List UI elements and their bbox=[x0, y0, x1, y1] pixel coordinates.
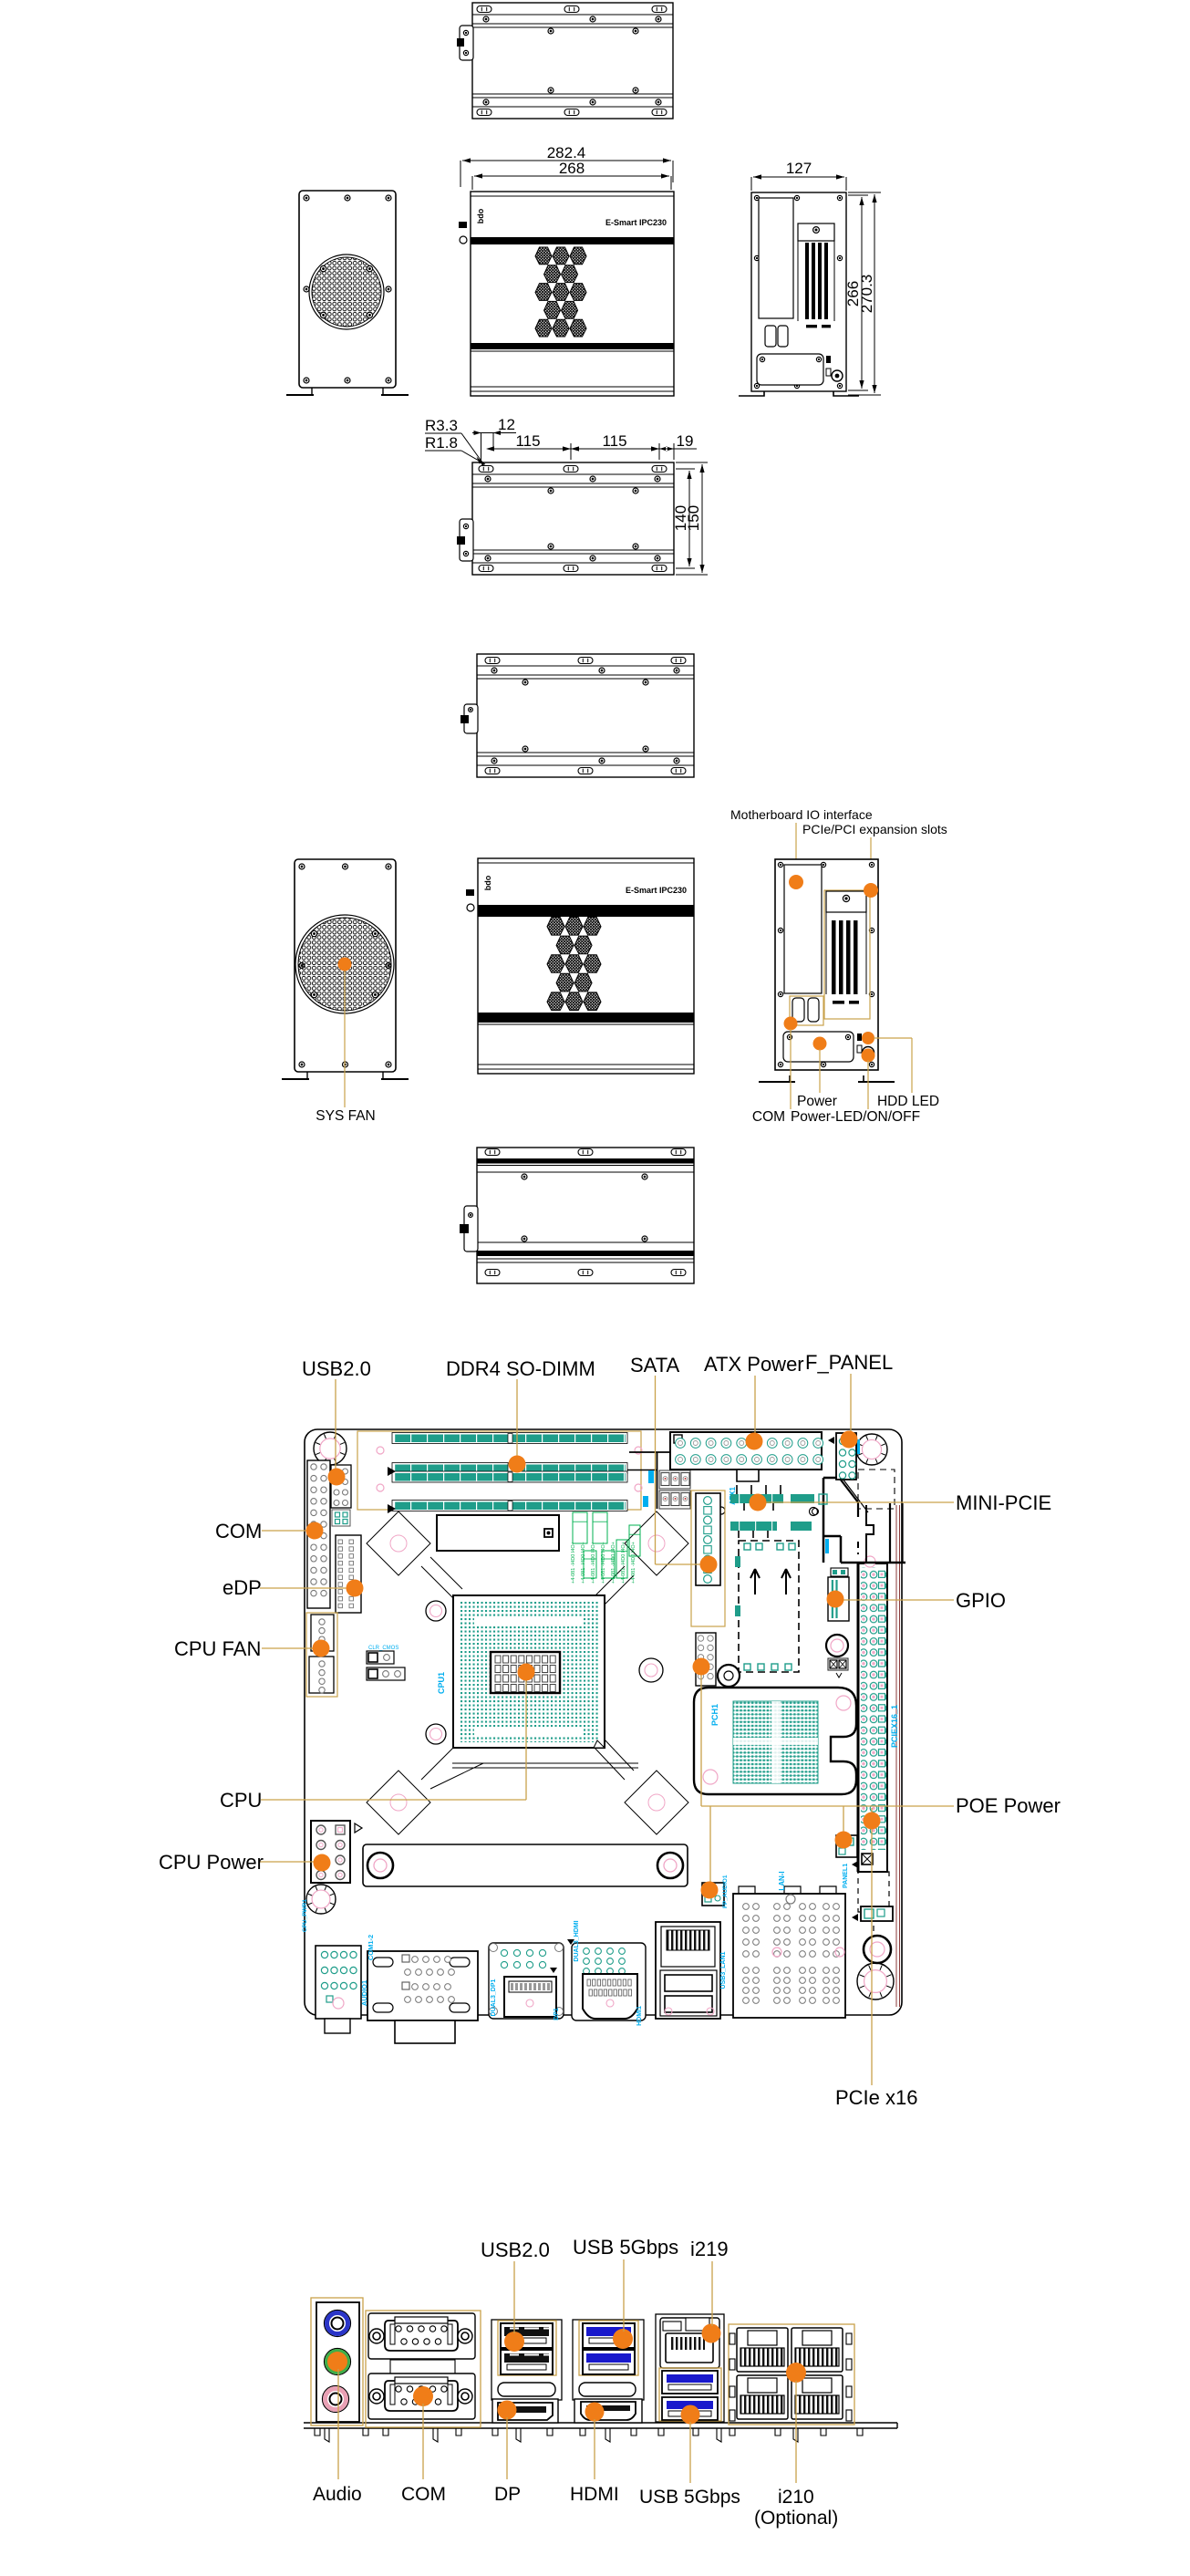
svg-text:PCIe/PCI expansion slots: PCIe/PCI expansion slots bbox=[802, 822, 947, 836]
svg-text:268: 268 bbox=[559, 160, 585, 177]
svg-text:+4-081 -I4D0 I4O+: +4-081 -I4D0 I4O+ bbox=[571, 1542, 576, 1584]
svg-text:Motherboard IO interface: Motherboard IO interface bbox=[730, 807, 873, 822]
svg-text:+4-081 -I4D0 I4O+: +4-081 -I4D0 I4O+ bbox=[581, 1542, 586, 1584]
svg-text:CLR_CMOS: CLR_CMOS bbox=[368, 1646, 398, 1651]
svg-text:+4-081 -I4D0 I4O+: +4-081 -I4D0 I4O+ bbox=[601, 1542, 606, 1584]
svg-text:POE Power: POE Power bbox=[956, 1794, 1061, 1817]
svg-text:270.3: 270.3 bbox=[858, 275, 875, 314]
svg-text:eDP: eDP bbox=[222, 1576, 262, 1599]
svg-text:USB 5Gbps: USB 5Gbps bbox=[573, 2236, 678, 2259]
svg-text:FP_AUDIO1: FP_AUDIO1 bbox=[722, 1875, 729, 1908]
svg-text:PCIe x16: PCIe x16 bbox=[835, 2086, 918, 2109]
svg-text:SATA: SATA bbox=[630, 1354, 680, 1376]
svg-text:Power: Power bbox=[797, 1094, 837, 1109]
svg-text:DDR4 SO-DIMM: DDR4 SO-DIMM bbox=[446, 1357, 595, 1380]
svg-text:F_PANEL: F_PANEL bbox=[805, 1351, 893, 1374]
svg-text:bdo: bdo bbox=[476, 208, 485, 223]
svg-text:HDD LED: HDD LED bbox=[877, 1094, 939, 1109]
svg-text:E-Smart IPC230: E-Smart IPC230 bbox=[605, 218, 667, 227]
svg-text:CPU_PWR1: CPU_PWR1 bbox=[302, 1899, 308, 1933]
svg-text:R1.8: R1.8 bbox=[425, 434, 458, 452]
svg-text:E-Smart IPC230: E-Smart IPC230 bbox=[626, 886, 687, 895]
svg-text:PCH1: PCH1 bbox=[710, 1704, 719, 1726]
svg-text:DP1: DP1 bbox=[554, 2008, 560, 2020]
svg-text:R3.3: R3.3 bbox=[425, 417, 458, 434]
svg-text:GPIO: GPIO bbox=[956, 1589, 1006, 1612]
svg-text:HDMI: HDMI bbox=[570, 2484, 619, 2505]
svg-text:COM: COM bbox=[752, 1109, 785, 1125]
svg-text:DP: DP bbox=[494, 2484, 521, 2505]
svg-text:USB2.0: USB2.0 bbox=[481, 2238, 550, 2261]
svg-text:115: 115 bbox=[602, 432, 626, 450]
svg-text:HDMI1: HDMI1 bbox=[636, 2006, 643, 2026]
svg-text:COM: COM bbox=[401, 2484, 446, 2505]
svg-text:COM: COM bbox=[215, 1520, 262, 1542]
svg-text:PCIEX16_1: PCIEX16_1 bbox=[890, 1705, 899, 1748]
svg-text:LAN-I: LAN-I bbox=[778, 1871, 786, 1890]
svg-text:Audio: Audio bbox=[313, 2484, 362, 2505]
svg-text:USB2.0: USB2.0 bbox=[302, 1357, 371, 1380]
svg-text:i219: i219 bbox=[690, 2238, 729, 2260]
svg-text:+4-081 -I4D0 I4O+: +4-081 -I4D0 I4O+ bbox=[611, 1542, 616, 1584]
svg-text:+4-081 -I4D0 I4O+: +4-081 -I4D0 I4O+ bbox=[621, 1542, 626, 1584]
svg-text:+4-081 -I4D0 I4O+: +4-081 -I4D0 I4O+ bbox=[631, 1542, 636, 1584]
svg-text:bdo: bdo bbox=[483, 875, 492, 890]
svg-text:MINI-PCIE: MINI-PCIE bbox=[956, 1491, 1051, 1514]
svg-text:CPU: CPU bbox=[220, 1789, 262, 1812]
svg-text:SYS FAN: SYS FAN bbox=[316, 1108, 375, 1124]
svg-text:USB3_LAN1: USB3_LAN1 bbox=[720, 1951, 727, 1989]
svg-text:COM1-2: COM1-2 bbox=[367, 1935, 375, 1960]
svg-text:DUAL3_HDMI: DUAL3_HDMI bbox=[574, 1920, 580, 1961]
svg-text:Power-LED/ON/OFF: Power-LED/ON/OFF bbox=[791, 1109, 920, 1125]
svg-text:12: 12 bbox=[498, 416, 515, 433]
svg-text:150: 150 bbox=[685, 505, 702, 531]
svg-text:USB 5Gbps: USB 5Gbps bbox=[639, 2487, 740, 2508]
svg-text:PANEL1: PANEL1 bbox=[843, 1864, 849, 1888]
svg-text:ATX Power: ATX Power bbox=[704, 1353, 804, 1376]
svg-text:DUAL3_DP1: DUAL3_DP1 bbox=[491, 1979, 497, 2016]
svg-text:CPU Power: CPU Power bbox=[159, 1851, 264, 1874]
svg-text:CPU1: CPU1 bbox=[437, 1672, 446, 1694]
svg-text:19: 19 bbox=[677, 432, 694, 450]
svg-text:127: 127 bbox=[786, 160, 812, 177]
svg-text:+4-081 -I4D0 I4O+: +4-081 -I4D0 I4O+ bbox=[591, 1542, 596, 1584]
svg-text:i210: i210 bbox=[778, 2487, 814, 2508]
svg-text:CPU FAN: CPU FAN bbox=[174, 1637, 261, 1660]
svg-text:(Optional): (Optional) bbox=[754, 2508, 838, 2529]
svg-text:115: 115 bbox=[515, 432, 540, 450]
